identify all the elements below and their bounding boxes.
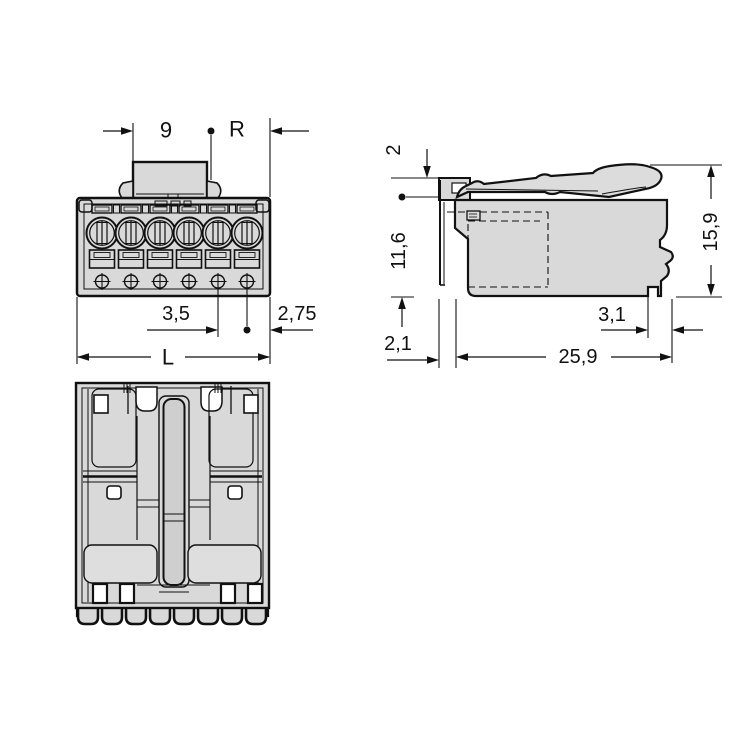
center-slot	[164, 399, 185, 585]
plug-right-wing	[207, 181, 221, 198]
dim-plug-width: 9	[103, 118, 215, 143]
dim-latch-offset-label: 3,1	[598, 304, 626, 326]
dim-pitch: 3,5	[147, 303, 251, 334]
dim-body-depth-label: 25,9	[559, 346, 598, 368]
side-lever-outline	[457, 164, 662, 197]
connector-technical-drawing: 9 R 3,5 2,75 L	[0, 0, 750, 750]
dim-body-height-label: 11,6	[388, 232, 410, 269]
dim-plug-width-label: 9	[160, 118, 172, 143]
dim-top-step-label: 2	[383, 144, 405, 155]
drawing-canvas: 9 R 3,5 2,75 L	[0, 0, 750, 750]
bottom-view	[76, 383, 269, 624]
dim-edge-offset: 2,75	[270, 303, 316, 334]
dim-total-length: L	[77, 345, 270, 370]
dim-body-depth: 25,9	[456, 346, 672, 368]
front-view	[77, 162, 270, 296]
dim-radius-ref-label: R	[229, 117, 245, 142]
dim-flange-depth-label: 2,1	[384, 333, 412, 355]
side-view	[439, 164, 673, 296]
dim-total-height-label: 15,9	[700, 213, 722, 252]
leader-dot	[208, 128, 215, 135]
leader-dot	[244, 327, 251, 334]
dim-radius-ref: R	[229, 117, 309, 142]
dim-pitch-label: 3,5	[162, 303, 190, 325]
side-body-outline	[455, 200, 673, 296]
dim-body-height: 11,6	[388, 232, 410, 327]
plug-left-wing	[119, 181, 133, 198]
side-clamp-detail	[467, 211, 480, 220]
dim-edge-offset-label: 2,75	[278, 303, 317, 325]
dim-top-step: 2	[383, 144, 431, 200]
dim-total-length-label: L	[162, 345, 174, 370]
dim-latch-offset: 3,1	[598, 304, 703, 334]
dim-total-height: 15,9	[700, 165, 722, 296]
dim-flange-depth: 2,1	[384, 333, 439, 364]
leader-dot	[399, 194, 406, 201]
